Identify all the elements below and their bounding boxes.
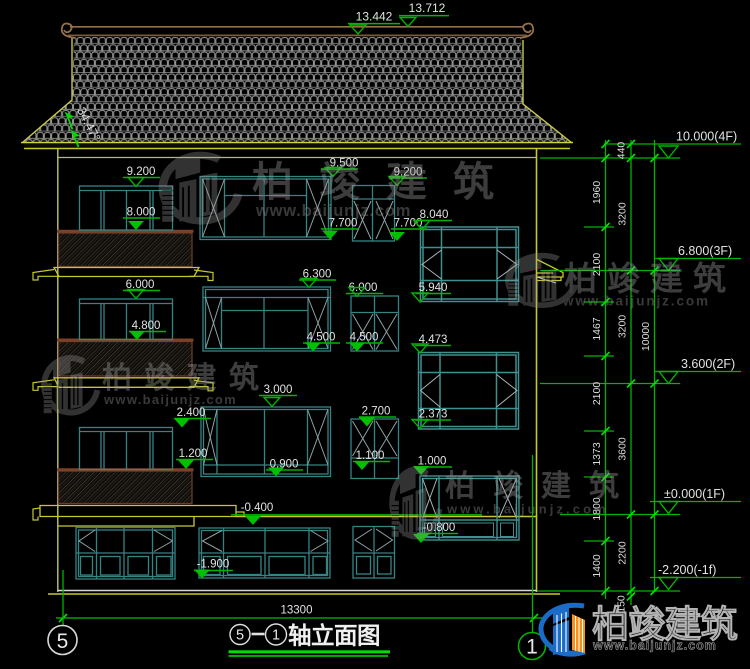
svg-text:轴立面图: 轴立面图 xyxy=(288,622,380,649)
svg-text:8.040: 8.040 xyxy=(420,209,449,221)
svg-text:柏竣建筑: 柏竣建筑 xyxy=(445,469,637,503)
svg-text:4.800: 4.800 xyxy=(132,320,161,332)
svg-text:5.940: 5.940 xyxy=(419,282,448,294)
svg-text:www.baijunjz.com: www.baijunjz.com xyxy=(446,502,609,517)
svg-text:1.200: 1.200 xyxy=(179,448,208,460)
svg-text:5: 5 xyxy=(236,628,244,644)
svg-text:2100: 2100 xyxy=(591,382,603,406)
svg-text:1: 1 xyxy=(526,636,538,659)
svg-text:2.400: 2.400 xyxy=(177,407,206,419)
svg-text:4.500: 4.500 xyxy=(350,332,379,344)
svg-text:1: 1 xyxy=(272,628,280,644)
svg-text:13.442: 13.442 xyxy=(356,10,393,24)
svg-text:-1.900: -1.900 xyxy=(197,559,230,571)
svg-text:6.800(3F): 6.800(3F) xyxy=(678,244,732,258)
svg-text:2200: 2200 xyxy=(617,541,629,565)
svg-text:13300: 13300 xyxy=(281,605,313,617)
svg-text:1467: 1467 xyxy=(591,317,603,341)
svg-text:3200: 3200 xyxy=(617,315,629,339)
svg-text:10.000(4F): 10.000(4F) xyxy=(676,130,737,144)
svg-text:www.baijunjz.com: www.baijunjz.com xyxy=(562,294,710,309)
svg-text:柏竣建筑: 柏竣建筑 xyxy=(102,361,271,395)
svg-text:2.373: 2.373 xyxy=(419,409,448,421)
svg-text:-0.400: -0.400 xyxy=(241,502,274,514)
svg-text:1960: 1960 xyxy=(591,181,603,205)
svg-text:1400: 1400 xyxy=(591,554,603,578)
svg-text:3200: 3200 xyxy=(617,202,629,226)
svg-text:www.baijunjz.com: www.baijunjz.com xyxy=(103,392,237,407)
svg-text:4.500: 4.500 xyxy=(307,332,336,344)
svg-text:1.100: 1.100 xyxy=(356,450,385,462)
svg-text:±0.000(1F): ±0.000(1F) xyxy=(664,487,725,501)
svg-text:13.712: 13.712 xyxy=(409,1,446,15)
svg-text:2.700: 2.700 xyxy=(362,406,391,418)
svg-text:www.baijunjz.com: www.baijunjz.com xyxy=(592,639,717,653)
svg-text:1373: 1373 xyxy=(591,442,603,466)
svg-text:5: 5 xyxy=(57,630,69,653)
svg-text:9.200: 9.200 xyxy=(127,166,156,178)
svg-text:1.000: 1.000 xyxy=(418,456,447,468)
svg-text:3600: 3600 xyxy=(617,437,629,461)
svg-text:8.000: 8.000 xyxy=(127,207,156,219)
svg-text:440: 440 xyxy=(616,142,628,160)
svg-text:www.baijunjz.com: www.baijunjz.com xyxy=(255,202,411,220)
svg-text:10000: 10000 xyxy=(640,322,652,351)
svg-text:柏竣建筑: 柏竣建筑 xyxy=(564,260,736,297)
svg-text:柏竣建筑: 柏竣建筑 xyxy=(252,159,520,205)
svg-text:3.600(2F): 3.600(2F) xyxy=(681,357,735,371)
svg-text:-2.200(-1f): -2.200(-1f) xyxy=(658,563,716,577)
